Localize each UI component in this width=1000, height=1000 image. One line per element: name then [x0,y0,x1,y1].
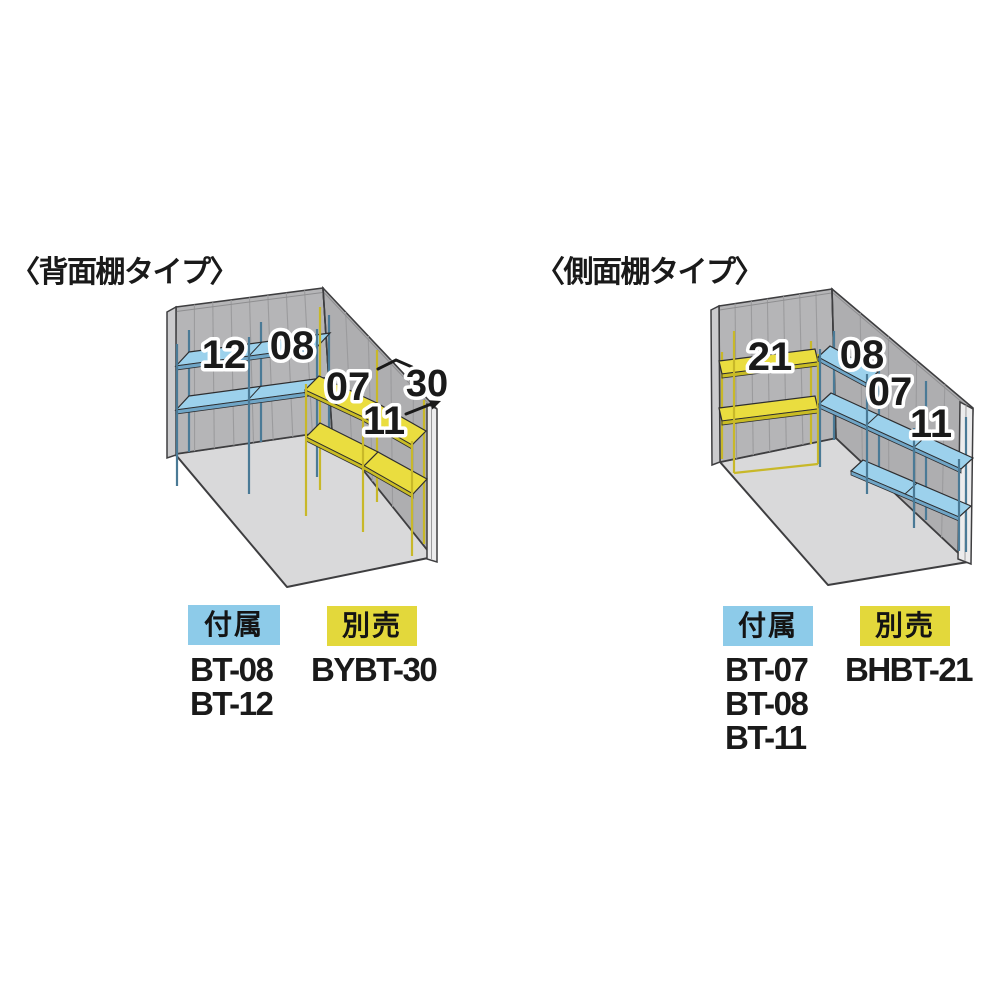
product-code: BT-08 [725,687,807,721]
product-code: BT-11 [725,721,807,755]
shelf-label-30: 30 [406,363,448,405]
shelf-label-08: 08 [270,324,315,368]
product-code: BYBT-30 [311,653,436,687]
shelf-label-12: 12 [202,333,247,377]
product-code: BT-12 [190,687,272,721]
product-code: BHBT-21 [845,653,972,687]
sold-separately-badge: 別売 [860,606,950,646]
product-code: BT-08 [190,653,272,687]
included-badge: 付属 [188,605,280,645]
shelf-label-21: 21 [748,335,793,379]
shelf-label-07: 07 [868,370,913,414]
side-shelf-type-illustration: 21 08 07 11 [700,270,995,600]
shelf-label-11: 11 [363,399,405,443]
left-edge-pillar [711,306,720,465]
product-code: BT-07 [725,653,807,687]
left-edge-pillar [167,307,176,458]
included-badge: 付属 [723,606,813,646]
sold-separately-badge: 別売 [327,606,417,646]
shed-shelf-type-diagram: 〈背面棚タイプ〉 〈側面棚タイプ〉 [0,0,1000,1000]
back-shelf-type-illustration: 12 08 07 11 30 [155,270,455,600]
shelf-label-11: 11 [910,402,952,446]
sold-separately-product-codes: BYBT-30 [311,653,436,687]
sold-separately-product-codes: BHBT-21 [845,653,972,687]
included-product-codes: BT-08 BT-12 [190,653,272,721]
included-product-codes: BT-07 BT-08 BT-11 [725,653,807,755]
